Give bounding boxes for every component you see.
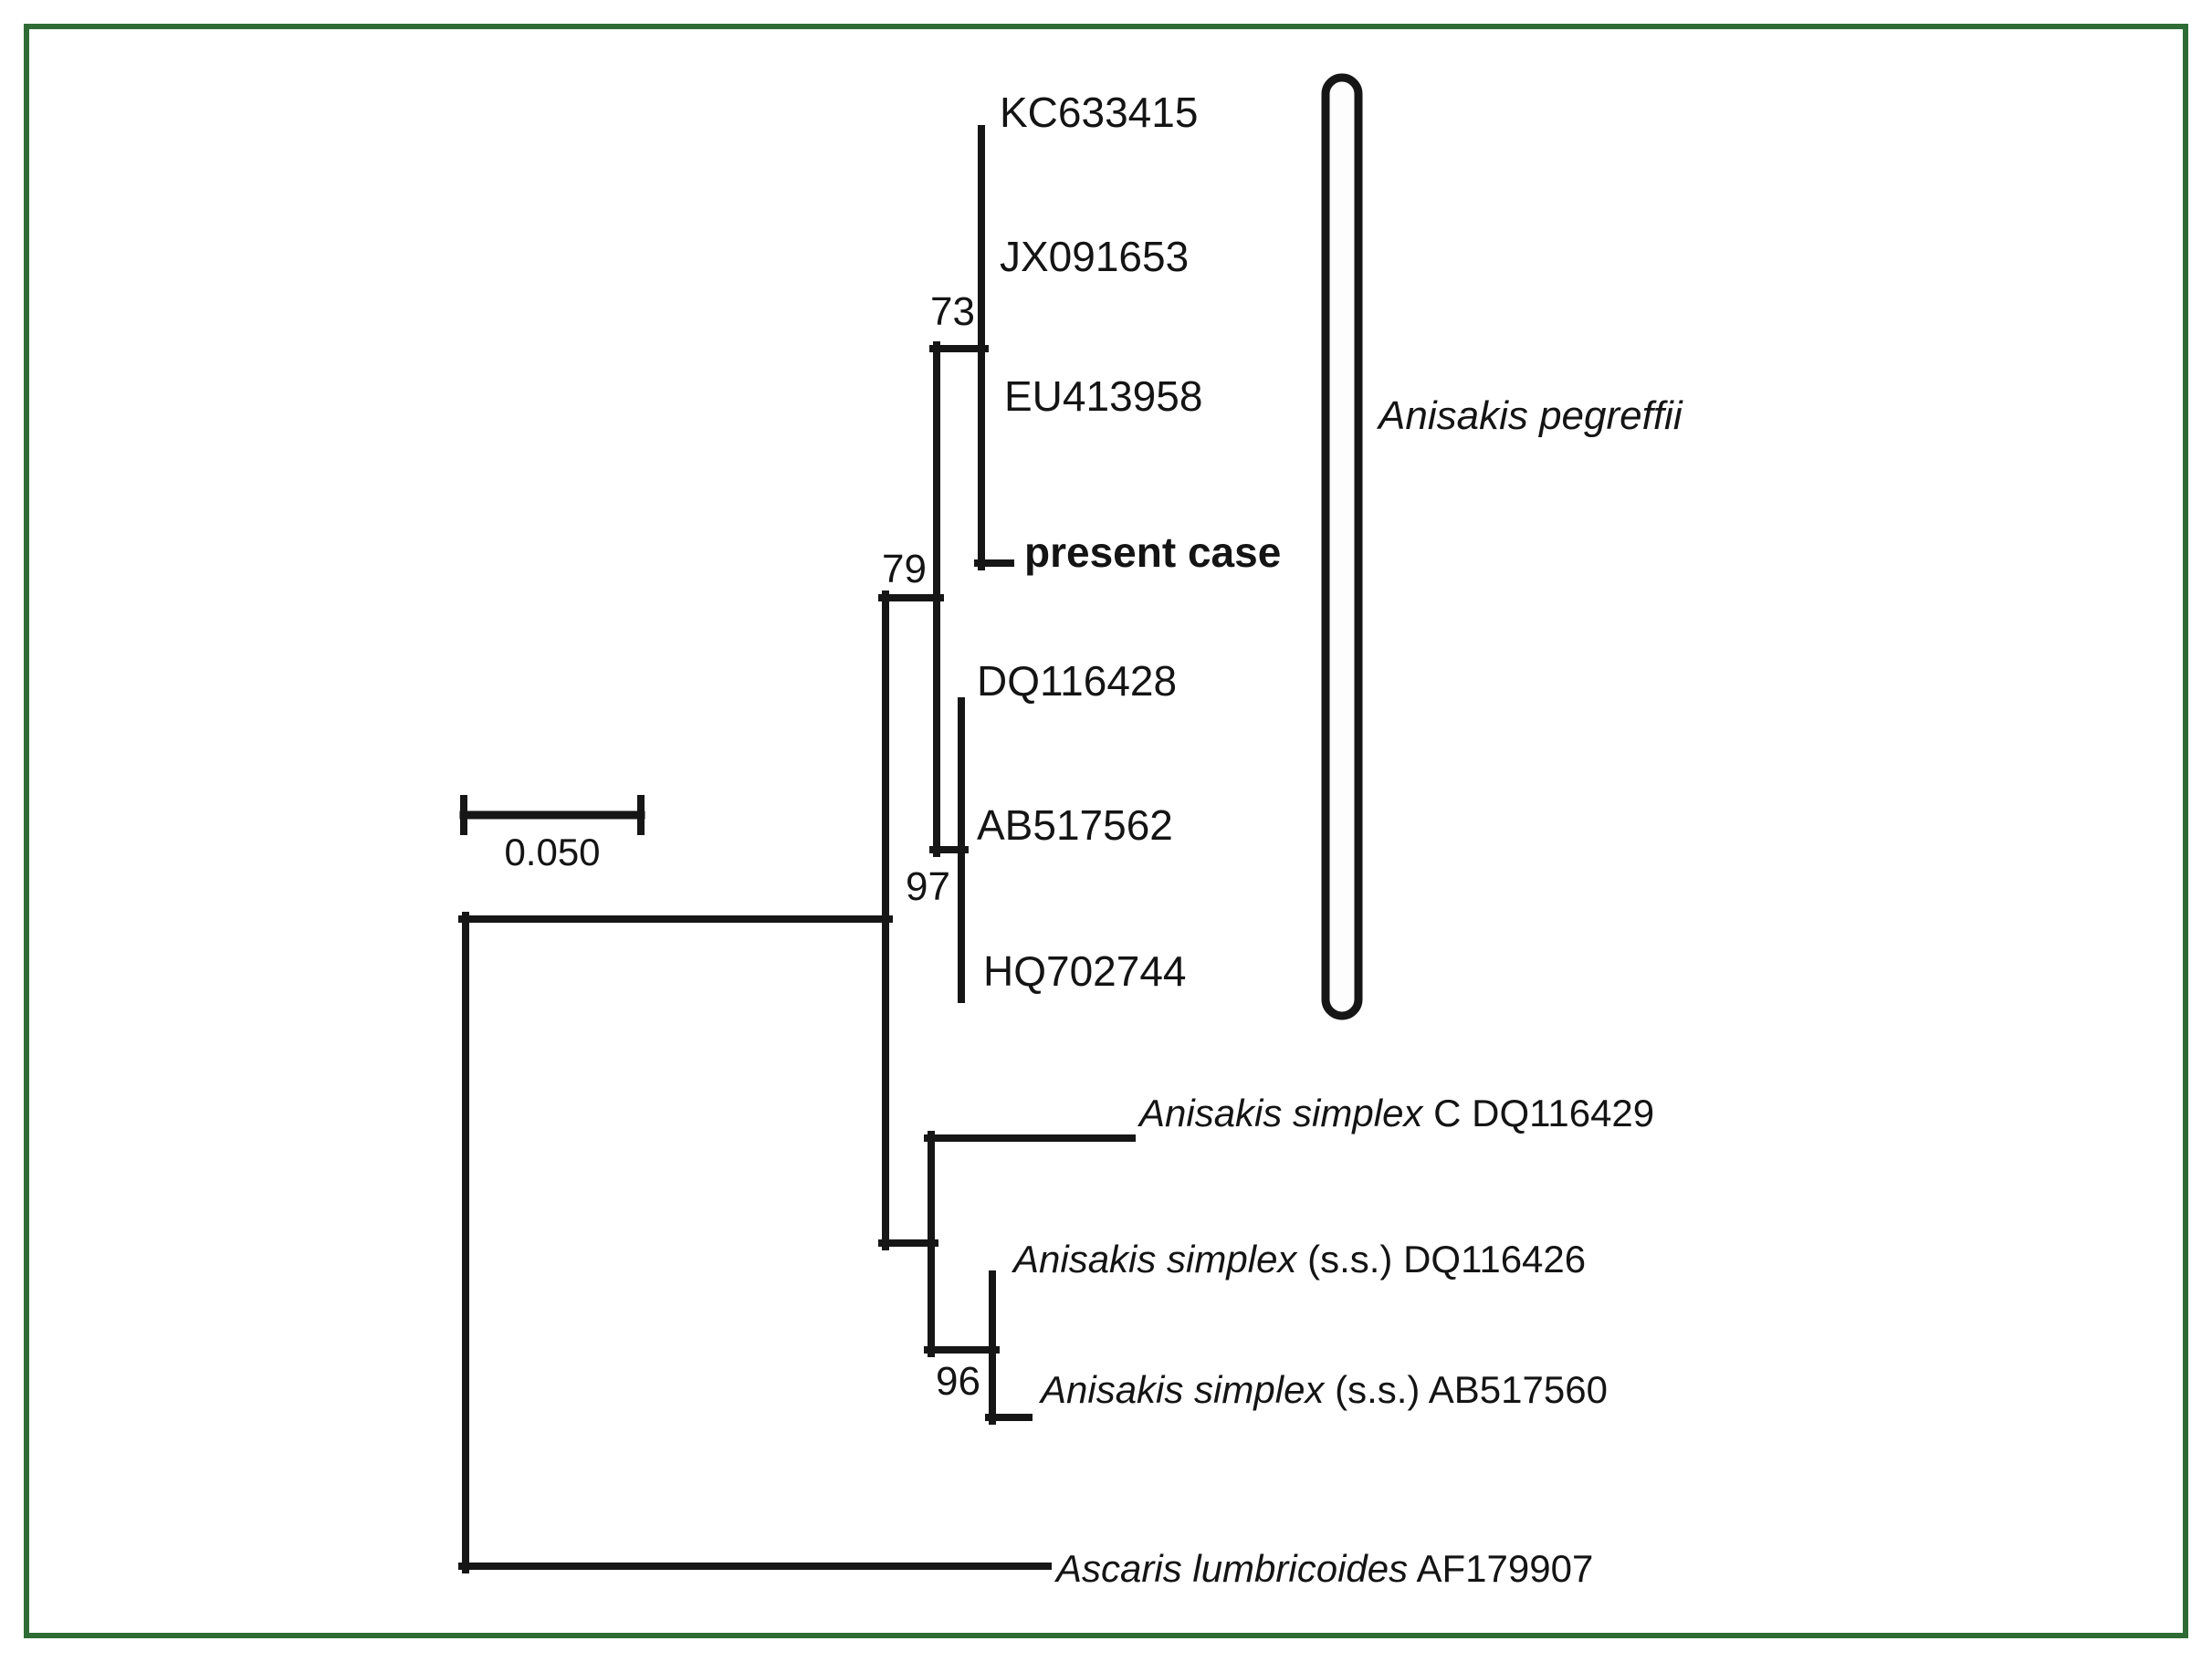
tip-label-ascaris-lumbricoides: Ascaris lumbricoides AF179907 (1054, 1547, 1593, 1590)
tip-label-eu413958: EU413958 (1004, 372, 1202, 420)
tip-label-kc633415: KC633415 (1000, 89, 1198, 136)
accession-regular: (s.s.) AB517560 (1335, 1368, 1608, 1411)
tip-label-present-case: present case (1024, 528, 1281, 576)
tree-canvas: 0.050 Anisakis pegreffii 73 79 97 96 KC6… (0, 0, 2212, 1662)
tip-label-jx091653: JX091653 (1000, 233, 1189, 280)
tip-label-anisakis-simplex-dq116426: Anisakis simplex (s.s.) DQ116426 (1011, 1238, 1586, 1280)
species-name-italic: Anisakis simplex (1011, 1238, 1298, 1280)
bootstrap-79: 79 (882, 547, 927, 591)
tip-label-dq116428: DQ116428 (977, 657, 1177, 705)
species-name-italic: Anisakis simplex (1137, 1092, 1424, 1134)
species-name-italic: Anisakis simplex (1038, 1368, 1326, 1411)
tip-label-anisakis-simplex-ab517560: Anisakis simplex (s.s.) AB517560 (1038, 1368, 1608, 1411)
pegreffii-clade-bracket (1326, 78, 1358, 1016)
phylogenetic-tree-figure: 0.050 Anisakis pegreffii 73 79 97 96 KC6… (0, 0, 2212, 1662)
accession-regular: (s.s.) DQ116426 (1307, 1238, 1586, 1280)
scale-bar-label: 0.050 (504, 831, 600, 873)
species-name-italic: Ascaris lumbricoides (1054, 1547, 1408, 1590)
tip-label-anisakis-simplex-c: Anisakis simplex C DQ116429 (1137, 1092, 1654, 1134)
tip-label-hq702744: HQ702744 (983, 947, 1187, 995)
bootstrap-96: 96 (936, 1359, 980, 1404)
accession-regular: C DQ116429 (1433, 1092, 1654, 1134)
pegreffii-clade-label: Anisakis pegreffii (1376, 393, 1683, 438)
bootstrap-73: 73 (930, 289, 975, 334)
tip-label-ab517562: AB517562 (977, 801, 1173, 849)
accession-regular: AF179907 (1416, 1547, 1593, 1590)
bootstrap-97: 97 (906, 864, 950, 909)
